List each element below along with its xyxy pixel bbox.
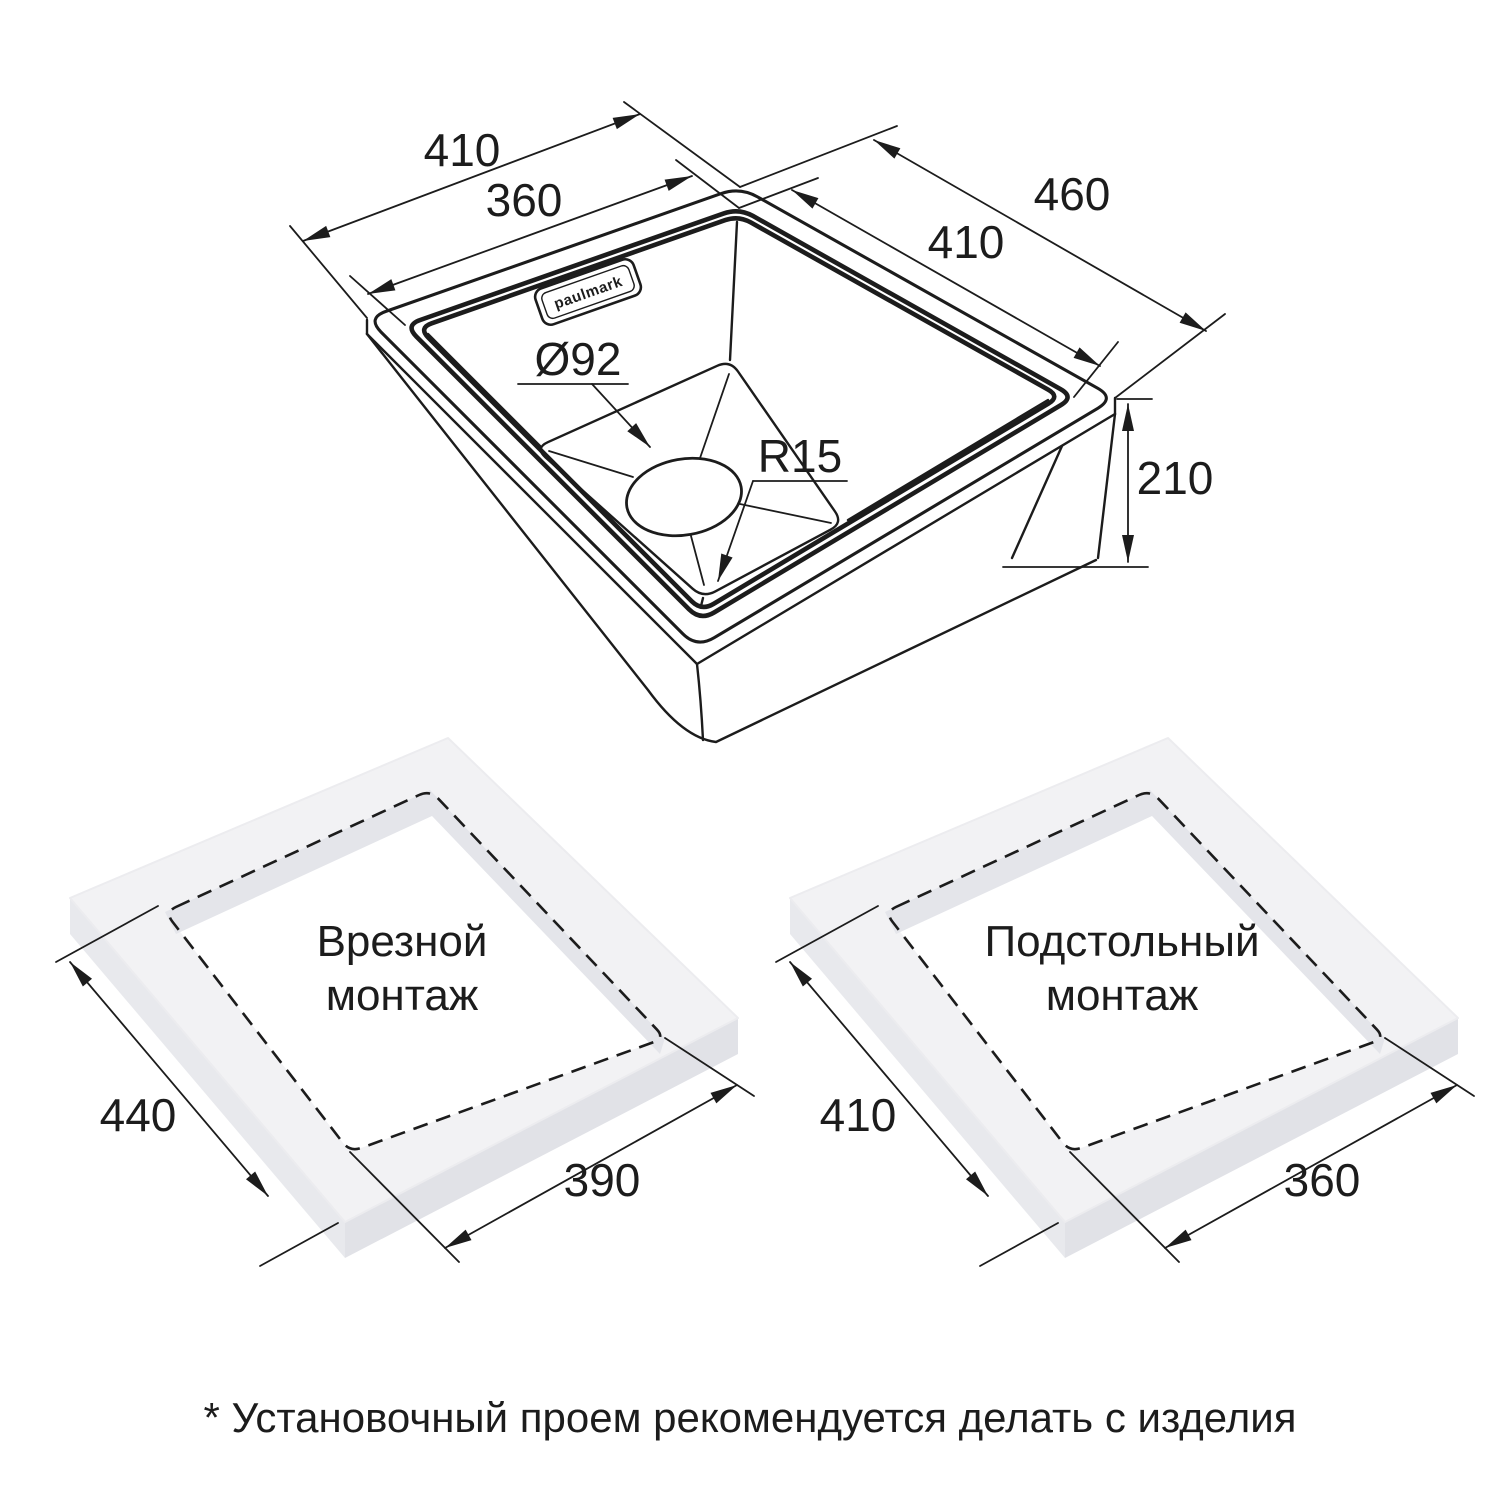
under-mount-dim-side: 410	[820, 1089, 897, 1141]
inset-mount-dim-front: 390	[564, 1154, 641, 1206]
inset-mount-dim-side: 440	[100, 1089, 177, 1141]
inset-mount-diagram: Врезной монтаж 440 390	[56, 738, 754, 1266]
sink-technical-diagram: paulmark	[0, 0, 1500, 1500]
under-mount-diagram: Подстольный монтаж 410 360	[776, 738, 1474, 1266]
dim-inner-depth-label: 410	[928, 216, 1005, 268]
drain-hole	[620, 450, 747, 545]
bowl-wall-edges	[428, 222, 1048, 606]
under-mount-title-line2: монтаж	[1046, 971, 1199, 1020]
dim-outer-width-label: 410	[424, 124, 501, 176]
under-mount-title-line1: Подстольный	[984, 917, 1259, 966]
footnote: * Установочный проем рекомендуется делат…	[204, 1394, 1297, 1441]
bowl-depth-label: 210	[1137, 452, 1214, 504]
inset-mount-title-line2: монтаж	[326, 971, 479, 1020]
inset-mount-title-line1: Врезной	[317, 917, 488, 966]
drain-diameter-label: Ø92	[535, 333, 622, 385]
dim-outer-depth-label: 460	[1034, 168, 1111, 220]
sink-bowl-rim-outer	[412, 211, 1068, 616]
sink-body	[367, 320, 1115, 742]
isometric-sink-view: paulmark	[290, 102, 1225, 742]
under-mount-dim-front: 360	[1284, 1154, 1361, 1206]
dim-inner-width-label: 360	[486, 174, 563, 226]
sink-bowl-rim-inner	[424, 218, 1054, 607]
corner-radius-label: R15	[758, 430, 842, 482]
